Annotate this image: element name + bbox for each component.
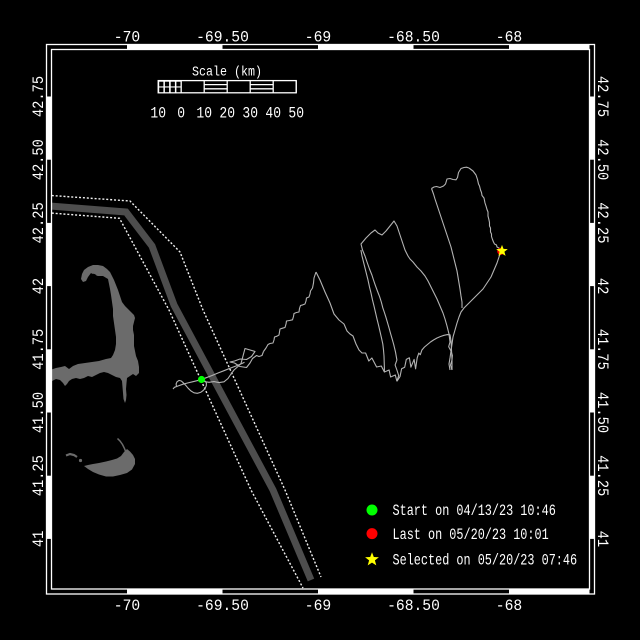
svg-text:41: 41 xyxy=(593,531,611,548)
svg-text:10: 10 xyxy=(196,104,212,122)
svg-text:41.75: 41.75 xyxy=(593,329,611,370)
svg-text:30: 30 xyxy=(242,104,258,122)
svg-text:42.50: 42.50 xyxy=(30,139,48,180)
svg-text:-68.50: -68.50 xyxy=(387,597,440,615)
svg-text:41.50: 41.50 xyxy=(30,392,48,433)
svg-text:42: 42 xyxy=(593,278,611,295)
svg-text:-69: -69 xyxy=(305,597,331,615)
svg-text:20: 20 xyxy=(219,104,235,122)
svg-text:41.25: 41.25 xyxy=(30,455,48,496)
svg-text:Selected on 05/20/23 07:46: Selected on 05/20/23 07:46 xyxy=(393,552,578,570)
svg-text:-68: -68 xyxy=(496,597,522,615)
svg-text:Last on 05/20/23 10:01: Last on 05/20/23 10:01 xyxy=(393,526,549,544)
svg-text:42.75: 42.75 xyxy=(30,76,48,117)
svg-text:42.50: 42.50 xyxy=(593,139,611,180)
svg-text:50: 50 xyxy=(288,104,304,122)
svg-text:-68: -68 xyxy=(496,29,522,47)
svg-text:Scale (km): Scale (km) xyxy=(192,65,262,81)
svg-text:41.75: 41.75 xyxy=(30,329,48,370)
svg-text:42.25: 42.25 xyxy=(593,202,611,243)
svg-text:40: 40 xyxy=(265,104,281,122)
svg-text:41.25: 41.25 xyxy=(593,455,611,496)
svg-text:42.25: 42.25 xyxy=(30,202,48,243)
svg-text:-68.50: -68.50 xyxy=(387,29,440,47)
svg-text:41: 41 xyxy=(30,531,48,548)
svg-text:41.50: 41.50 xyxy=(593,392,611,433)
svg-text:-70: -70 xyxy=(114,29,140,47)
svg-text:-70: -70 xyxy=(114,597,140,615)
svg-text:10: 10 xyxy=(150,104,166,122)
svg-text:42.75: 42.75 xyxy=(593,76,611,117)
svg-text:42: 42 xyxy=(30,278,48,295)
svg-text:-69.50: -69.50 xyxy=(196,597,249,615)
svg-text:-69.50: -69.50 xyxy=(196,29,249,47)
svg-text:0: 0 xyxy=(177,104,185,122)
svg-text:-69: -69 xyxy=(305,29,331,47)
svg-text:Start on 04/13/23 10:46: Start on 04/13/23 10:46 xyxy=(393,502,556,520)
